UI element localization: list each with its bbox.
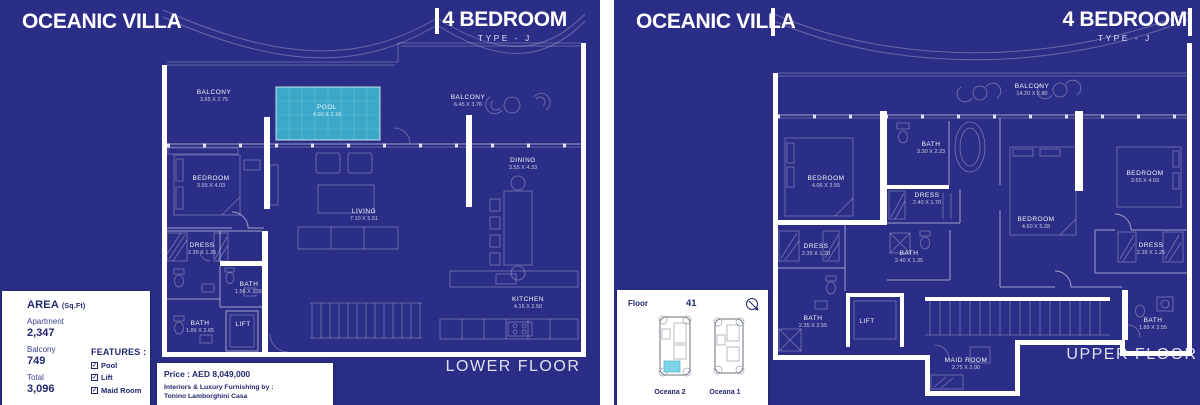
furnishing-text: Interiors & Luxury Furnishing by : Tonin… <box>164 384 333 402</box>
area-unit: (Sq.Ft) <box>62 303 86 310</box>
price-text: Price : AED 8,049,000 <box>164 369 333 379</box>
keyplan-oceana-1 <box>709 315 749 377</box>
price-panel: Price : AED 8,049,000 Interiors & Luxury… <box>157 363 333 405</box>
kitchen-furniture <box>440 271 578 339</box>
feature-pool: ✓ Pool <box>91 361 146 370</box>
area-heading: AREA (Sq.Ft) <box>27 299 150 311</box>
keyplan-label-oceana-2: Oceana 2 <box>654 389 685 396</box>
living-furniture <box>270 153 398 249</box>
bedroom-furniture <box>168 148 260 215</box>
bedroom-right-furniture <box>1095 147 1187 273</box>
floor-key-panel: Floor 41 Oceana 2 Oceana 1 <box>617 290 768 405</box>
features-block: FEATURES : ✓ Pool ✓ Lift ✓ Maid Room <box>91 347 146 395</box>
floor-label: Floor <box>628 299 648 308</box>
feature-maid-room: ✓ Maid Room <box>91 386 146 395</box>
bath-mid-fixtures <box>887 230 950 280</box>
checkbox-icon: ✓ <box>91 387 98 394</box>
bedroom-left-furniture <box>785 138 853 216</box>
bath-top-fixtures <box>897 121 985 185</box>
stairs-upper <box>925 301 1110 335</box>
pool-shape <box>276 87 380 140</box>
upper-balcony-lounge <box>957 80 1081 102</box>
maid-room-furniture <box>931 345 990 389</box>
keyplan-oceana-2 <box>654 313 696 379</box>
dining-furniture <box>490 176 532 280</box>
master-bedroom-furniture <box>1000 118 1122 287</box>
north-arrow-icon <box>745 297 761 313</box>
floorplan-brochure: OCEANIC VILLA 4 BEDROOM TYPE - J <box>0 0 1200 405</box>
balcony-lounge <box>486 93 550 113</box>
dress-bath-left <box>777 225 845 351</box>
bath-right-fixtures <box>1128 297 1173 337</box>
floor-number: 41 <box>686 298 697 309</box>
area-row-apartment: Apartment 2,347 <box>27 317 150 339</box>
keyplan-label-oceana-1: Oceana 1 <box>709 389 740 396</box>
features-heading: FEATURES : <box>91 347 146 357</box>
area-panel: AREA (Sq.Ft) Apartment 2,347 Balcony 749… <box>2 291 150 405</box>
dress-top <box>887 189 960 223</box>
lift-box <box>854 301 896 339</box>
lower-floor-caption: LOWER FLOOR <box>446 358 581 376</box>
lower-floor-plan <box>152 35 597 365</box>
stairs <box>310 303 422 338</box>
checkbox-icon: ✓ <box>91 374 98 381</box>
upper-floor-caption: UPPER FLOOR <box>1066 346 1197 364</box>
service-rooms <box>167 231 262 351</box>
checkbox-icon: ✓ <box>91 362 98 369</box>
feature-lift: ✓ Lift <box>91 373 146 382</box>
